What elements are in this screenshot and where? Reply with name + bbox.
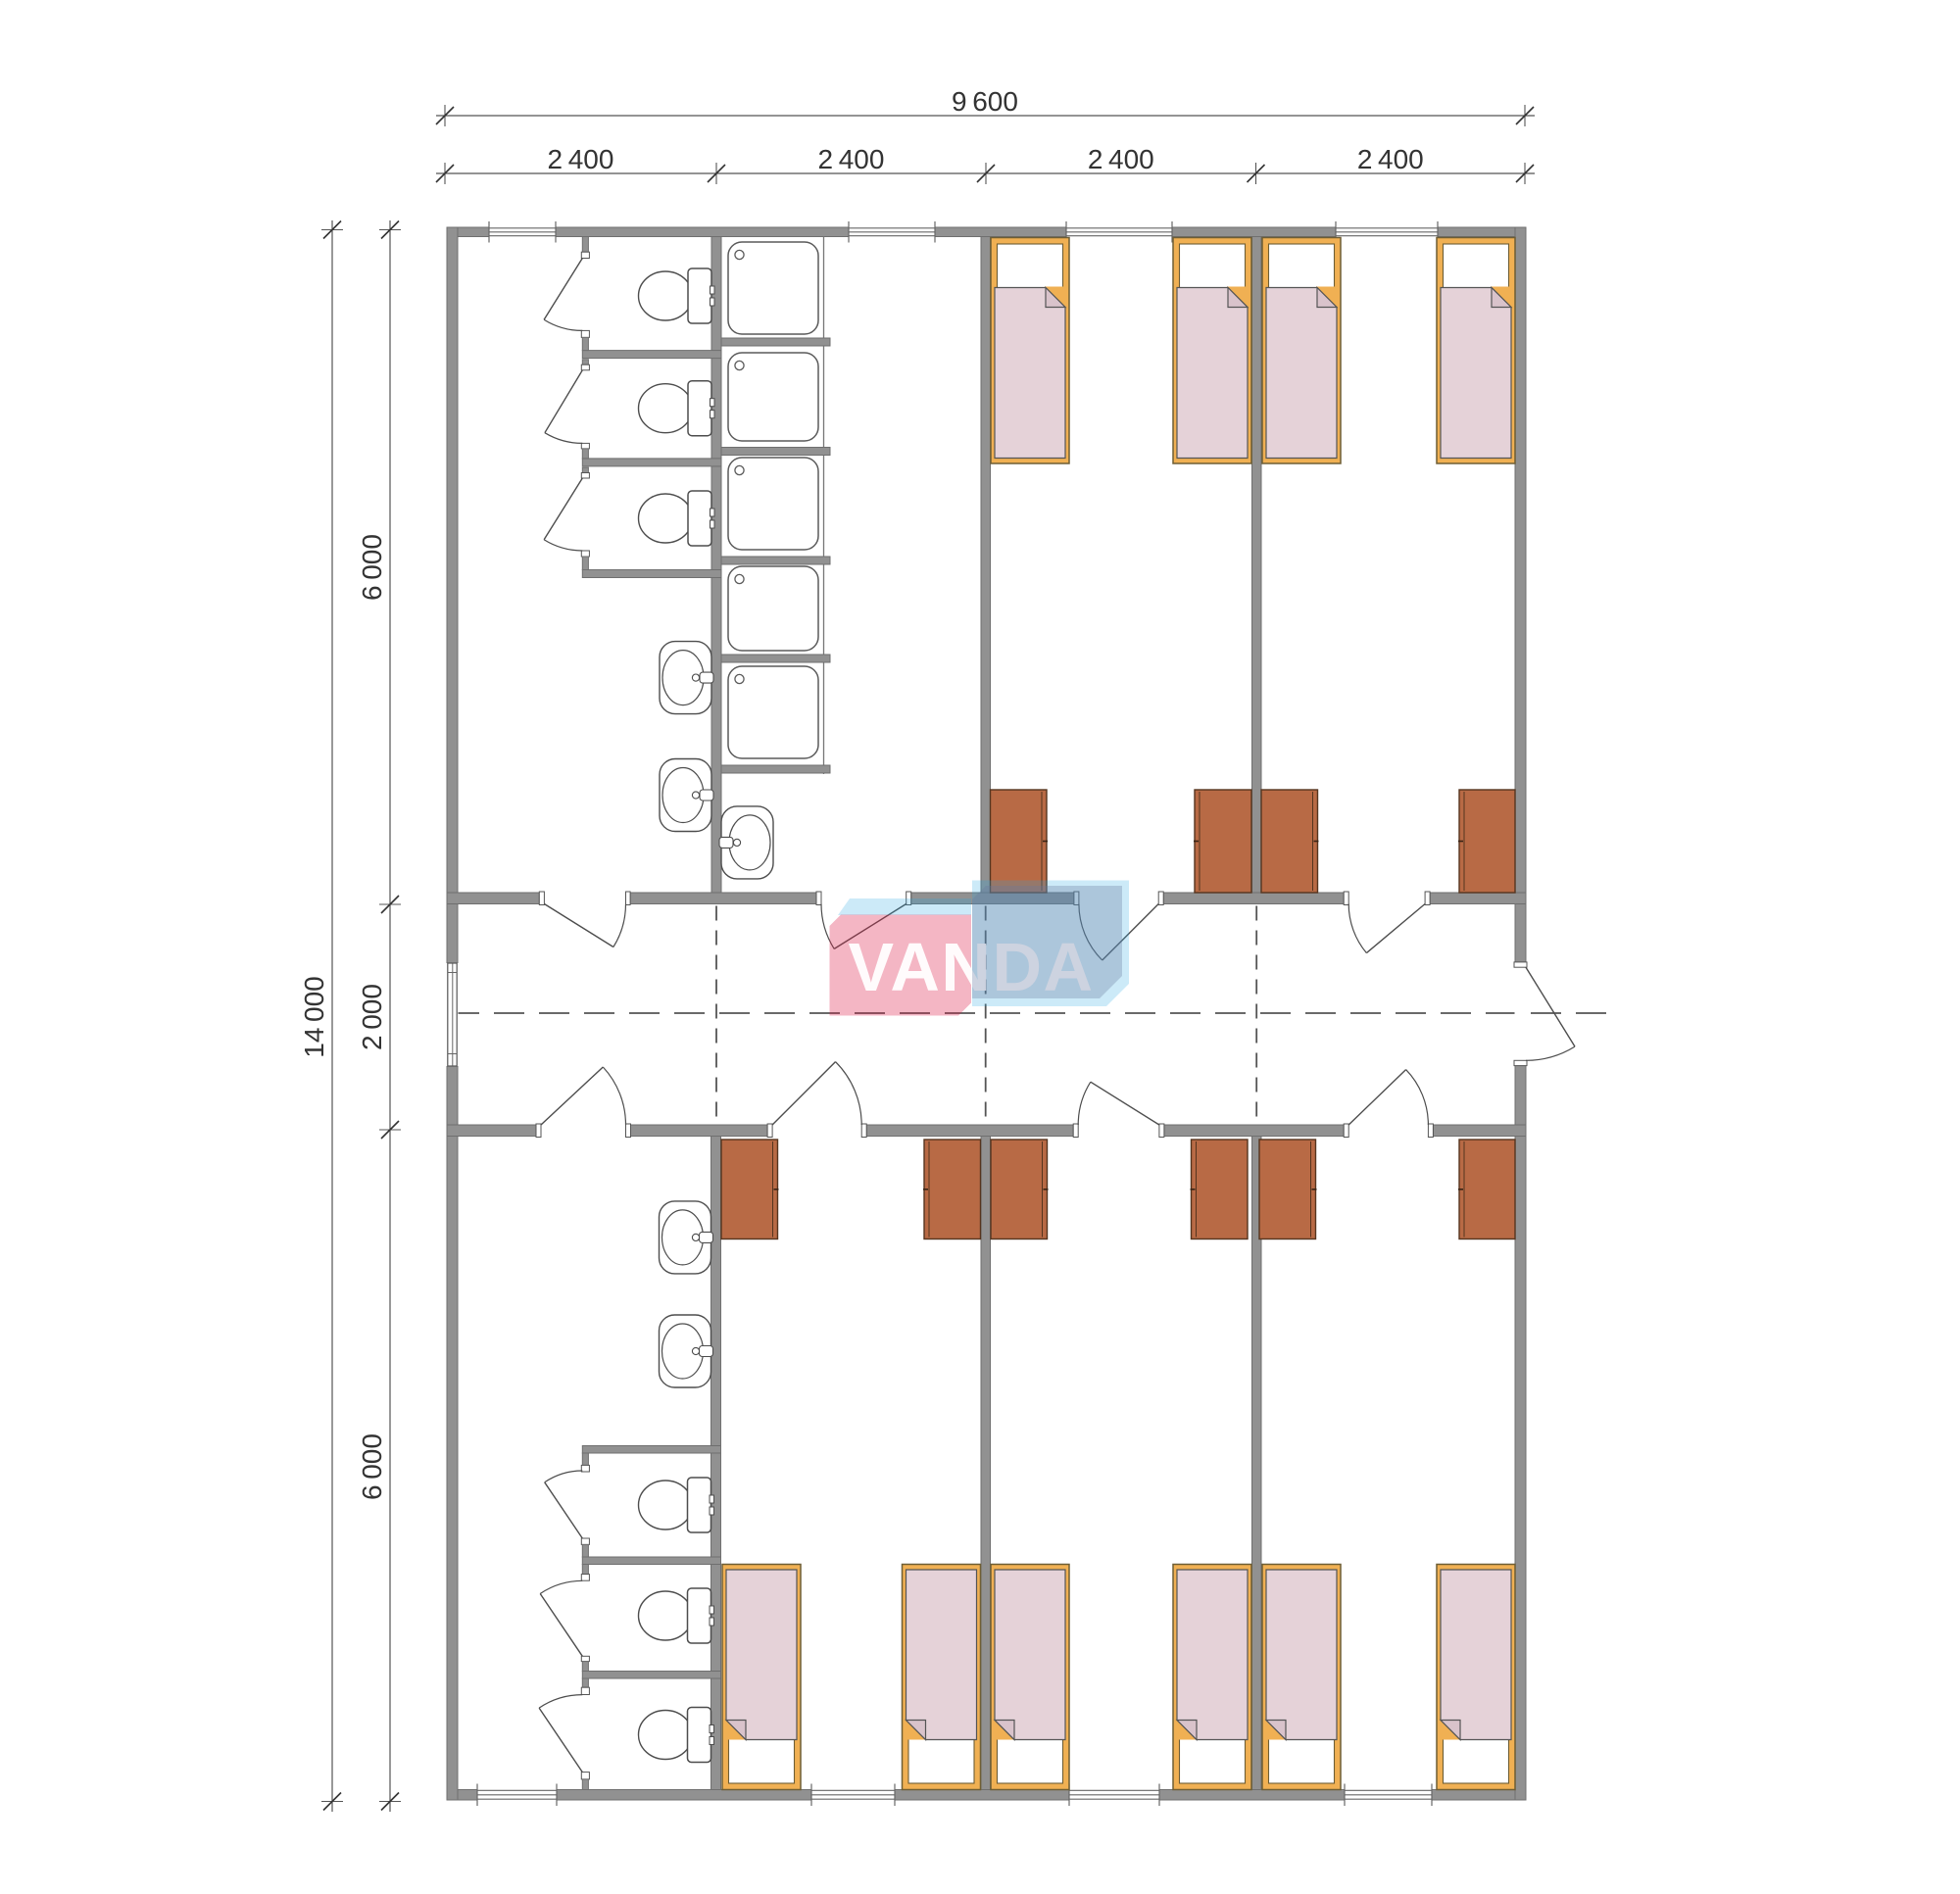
svg-text:2 400: 2 400 [548,144,614,174]
svg-text:2 400: 2 400 [1357,144,1424,174]
svg-text:14 000: 14 000 [299,976,329,1057]
svg-text:2 000: 2 000 [357,984,387,1050]
svg-text:6 000: 6 000 [357,534,387,601]
svg-text:2 400: 2 400 [1088,144,1154,174]
svg-text:6 000: 6 000 [357,1433,387,1500]
svg-text:9 600: 9 600 [952,86,1018,117]
svg-text:2 400: 2 400 [818,144,885,174]
